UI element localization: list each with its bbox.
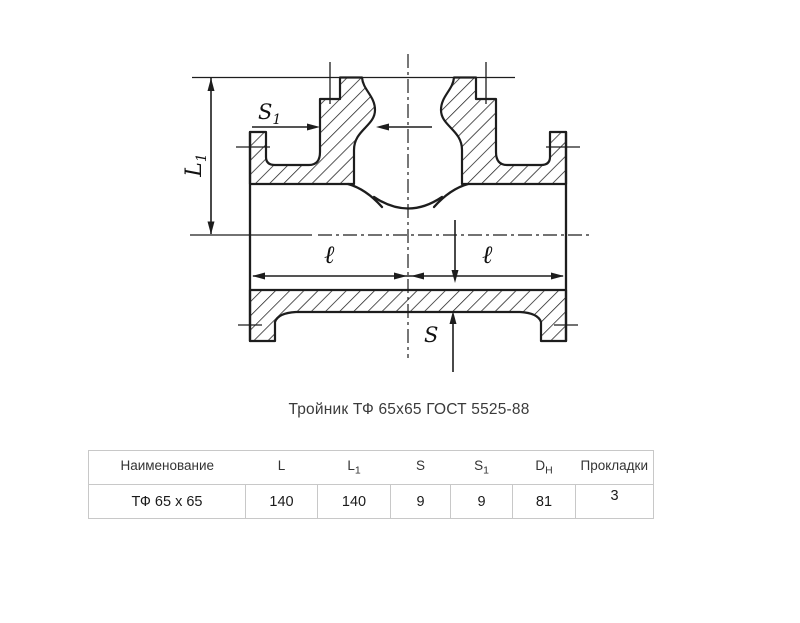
label-S1: S1 (258, 100, 281, 128)
header-S1: S1 (451, 451, 513, 485)
header-L: L (246, 451, 318, 485)
spec-table-header-row: Наименование L L1 S S1 DН Прокладки (89, 451, 654, 485)
header-gaskets: Прокладки (576, 451, 654, 485)
cell-L1: 140 (318, 485, 391, 519)
spec-table: Наименование L L1 S S1 DН Прокладки ТФ 6… (88, 450, 654, 519)
spec-table-data-row: ТФ 65 х 65 140 140 9 9 81 3 (89, 485, 654, 519)
cell-S: 9 (391, 485, 451, 519)
header-S: S (391, 451, 451, 485)
label-l-left: ℓ (324, 240, 335, 269)
header-L1: L1 (318, 451, 391, 485)
header-Dn: DН (513, 451, 576, 485)
page: L1 S1 ℓ ℓ S Тройник ТФ 65х65 ГОСТ 5525-8… (0, 0, 800, 623)
cell-S1: 9 (451, 485, 513, 519)
cell-name: ТФ 65 х 65 (89, 485, 246, 519)
cell-Dn: 81 (513, 485, 576, 519)
header-name: Наименование (89, 451, 246, 485)
label-L1: L1 (182, 153, 210, 178)
drawing-caption: Тройник ТФ 65х65 ГОСТ 5525-88 (0, 401, 800, 419)
extension-lines (190, 62, 580, 325)
branch-left-wall-section (250, 78, 375, 185)
cell-gaskets: 3 (576, 485, 654, 519)
saddle-arc-left (348, 184, 382, 207)
branch-right-wall-section (441, 78, 566, 185)
label-S: S (424, 323, 438, 347)
technical-drawing: L1 S1 ℓ ℓ S (0, 0, 800, 450)
saddle-arc-right (434, 184, 468, 207)
label-l-right: ℓ (482, 240, 493, 269)
cell-L: 140 (246, 485, 318, 519)
